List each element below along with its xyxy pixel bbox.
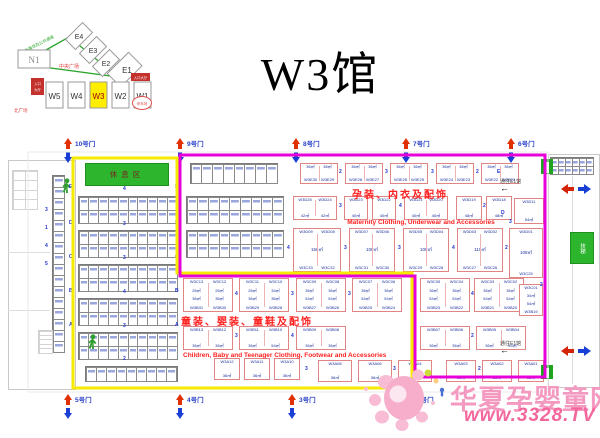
booth-number: W3B22 (445, 306, 468, 310)
booth-number: W3C05 (422, 280, 445, 284)
aisle-label: 3 (123, 324, 126, 329)
gate-label: 9号门 (187, 138, 204, 148)
minimap-hall-e1-label: E1 (122, 66, 132, 75)
booth-block: 36㎡36㎡W3E28W3E27 (345, 163, 383, 184)
booth-area: 36㎡ (347, 165, 364, 169)
booth-number: W3B10 (264, 328, 287, 332)
booth-divider (499, 283, 500, 307)
aisle-label: 3 (123, 222, 126, 227)
booth-number: W3E22 (483, 178, 500, 182)
booth-area: 26㎡ (241, 289, 264, 293)
booth-block: W3A1236㎡ (214, 358, 240, 380)
booth-area: 40㎡ (406, 214, 426, 218)
gate-arrow-up-icon (66, 400, 70, 405)
aisle-label: 2 (471, 334, 474, 339)
booth-block: W3D09W3D08156㎡W3C33W3C32 (293, 228, 341, 272)
booth-divider (264, 283, 265, 307)
booth-number: W3C01 (521, 286, 541, 290)
booth-area: 36㎡ (208, 297, 231, 301)
blue-right-arrow-icon (578, 346, 596, 356)
aisle-label: E (69, 185, 72, 190)
minimap-plaza-label: 中央广场 (59, 63, 79, 70)
booth-block: W3C11W3C1026㎡34㎡36㎡36㎡W3B29W3B28 (239, 278, 289, 312)
gate-label: 7号门 (413, 138, 430, 148)
aisle-label: B (69, 289, 73, 294)
booth-area: 48㎡ (458, 214, 480, 218)
red-left-arrow-icon (556, 184, 574, 194)
booth-block: W3D07W3D06108㎡W3C31W3C30 (349, 228, 395, 272)
category-children-en: Children, Baby and Teenager Clothing, Fo… (183, 352, 386, 359)
minimap-hall-n1-label: N1 (29, 55, 40, 65)
aisle-label: 3 (305, 367, 308, 372)
booth-area: 36㎡ (478, 344, 501, 348)
aisle-label: 2 (476, 170, 479, 175)
gate-label: 6号门 (518, 138, 535, 148)
gate-3号门: 3号门 (286, 390, 298, 423)
booth-block: W3C09W3C0836㎡36㎡54㎡54㎡W3B27W3B26 (296, 278, 346, 312)
aisle-label: 3 (123, 256, 126, 261)
booth-area: 108㎡ (511, 234, 541, 271)
booth-area: 36㎡ (276, 374, 298, 378)
booth-divider (445, 283, 446, 307)
gate-10号门: 10号门 (62, 134, 74, 167)
booth-divider (426, 234, 427, 266)
booth-area: 34㎡ (521, 294, 541, 298)
rest-area: 休息区 (85, 163, 169, 186)
booth-number: W3B19 (521, 310, 541, 314)
corridor-label-bottom: 通往E1馆 ← (500, 340, 521, 353)
booth-area: 36㎡ (208, 344, 231, 348)
booth-number: W3B25 (354, 306, 377, 310)
booth-number: W3B08 (321, 328, 344, 332)
aisle-label: 2 (505, 246, 508, 251)
booth-number: W3C26 (480, 266, 501, 270)
booth-divider (321, 283, 322, 307)
booth-number: W3C27 (459, 266, 480, 270)
minimap-hall-w3-label: W3 (93, 92, 106, 101)
booth-block: W3C13W3C1226㎡26㎡36㎡36㎡W3B31W3B30 (183, 278, 233, 312)
gate-arrow-up-icon (288, 390, 296, 400)
aisle-label: 5 (45, 262, 48, 267)
booth-number: W3E26 (392, 178, 409, 182)
aisle-label: 4 (123, 290, 126, 295)
booth-number: W3B24 (377, 306, 400, 310)
aisle-label: 3 (45, 208, 48, 213)
booth-area: 36㎡ (455, 165, 472, 169)
booth-area: 36㎡ (422, 344, 445, 348)
gate-arrow-down-icon (176, 157, 184, 167)
booth-number: W3C32 (317, 266, 339, 270)
aisle-label: D (175, 221, 179, 226)
gate-arrow-up-icon (64, 390, 72, 400)
aisle-label: 4 (235, 292, 238, 297)
booth-number: W3C11 (241, 280, 264, 284)
aisle-label: 3 (235, 334, 238, 339)
aisle-label: 2 (123, 357, 126, 362)
minimap-hall-e2-label: E2 (102, 61, 111, 68)
category-children-zh: 童装、婴装、童鞋及配饰 (181, 313, 313, 328)
grid-cell (166, 367, 177, 382)
booth-grid (78, 298, 178, 326)
booth-area: 26㎡ (185, 289, 208, 293)
gate-arrow-up-icon (64, 134, 72, 144)
booth-number: W3C30 (372, 266, 393, 270)
booth-block: W3A1136㎡ (244, 358, 270, 380)
gate-arrow-down-icon (176, 413, 184, 423)
booth-area: 36㎡ (241, 344, 264, 348)
aisle-label: 4 (471, 292, 474, 297)
booth-number: W3B27 (298, 306, 321, 310)
booth-number: W3A11 (246, 360, 268, 364)
aisle-label: 3 (398, 246, 401, 251)
booth-area: 26㎡ (208, 289, 231, 293)
gate-arrow-up-icon (66, 144, 70, 149)
booth-area: 54㎡ (264, 344, 287, 348)
booth-block: W3B07W3B0636㎡36㎡ (420, 326, 470, 350)
gate-arrow-up-icon (176, 390, 184, 400)
booth-block: W3B11W3B1036㎡54㎡ (239, 326, 289, 350)
gate-arrow-up-icon (294, 144, 298, 149)
booth-number: W3B29 (241, 306, 264, 310)
booth-number: W3C28 (426, 266, 447, 270)
minimap-corner-label: 北广场 (14, 107, 28, 114)
booth-area: 36㎡ (246, 374, 268, 378)
grid-cell (586, 166, 594, 175)
gate-arrow-down-icon (288, 413, 296, 423)
gate-arrow-down-icon (507, 157, 515, 167)
booth-area: 36㎡ (445, 344, 468, 348)
booth-area: 36㎡ (264, 297, 287, 301)
aisle-label: E (175, 185, 178, 190)
aisle-label: 4 (399, 204, 402, 209)
aisle-label: 4 (123, 187, 126, 192)
aisle-label: 4 (291, 334, 294, 339)
booth-number: W3C07 (354, 280, 377, 284)
booth-divider (455, 166, 456, 180)
booth-number: W3C13 (185, 280, 208, 284)
aisle-label: C (69, 255, 73, 260)
grid-cell (167, 231, 178, 245)
booth-divider (377, 283, 378, 307)
booth-number: W3B05 (478, 328, 501, 332)
booth-area: 40㎡ (426, 214, 446, 218)
booth-divider (364, 166, 365, 180)
booth-area: 36㎡ (354, 289, 377, 293)
left-annex-divider-2 (8, 310, 50, 311)
booth-number: W3C06 (377, 280, 400, 284)
corridor-label-top: 通往E1馆 ← (500, 178, 521, 191)
booth-number: W3B04 (501, 328, 524, 332)
aisle-label: D (69, 221, 73, 226)
grid-cell (272, 231, 284, 245)
booth-grid (78, 196, 178, 224)
booth-divider (321, 330, 322, 347)
minimap-entrance-right-label: 入口大厅 (134, 75, 148, 80)
minimap-hall-e4-label: E4 (75, 34, 84, 41)
booth-number: W3C31 (351, 266, 372, 270)
booth-number: W3C09 (298, 280, 321, 284)
minimap-hall-w2-label: W2 (115, 92, 128, 101)
booth-area: 40㎡ (374, 214, 394, 218)
booth-number: W3B23 (422, 306, 445, 310)
booth-area: 36㎡ (364, 165, 381, 169)
booth-number: W3B26 (321, 306, 344, 310)
aisle-label: 4 (452, 246, 455, 251)
booth-area: 42㎡ (295, 214, 315, 218)
booth-block: W3B09W3B0836㎡36㎡ (296, 326, 346, 350)
aisle-label: 3 (291, 292, 294, 297)
minimap-hall-w5-label: W5 (49, 92, 62, 101)
booth-area: 54㎡ (377, 297, 400, 301)
gate-5号门: 5号门 (62, 390, 74, 423)
aisle-label: D (501, 211, 505, 216)
gate-arrow-down-icon (402, 157, 410, 167)
booth-area: 36㎡ (476, 289, 499, 293)
grid-cell (272, 244, 284, 258)
booth-number: W3B21 (476, 306, 499, 310)
gate-7号门: 7号门 (400, 134, 412, 167)
exit-marker-icon-top (541, 159, 553, 174)
booth-number: W3E30 (302, 178, 319, 182)
booth-grid (186, 230, 284, 258)
booth-divider (319, 166, 320, 180)
gate-arrow-up-icon (404, 144, 408, 149)
blue-right-arrow-icon (578, 184, 596, 194)
booth-area: 36㎡ (321, 289, 344, 293)
booth-number: W3C25 (511, 272, 541, 276)
screen: 室外展场及公共通道 中央广场 E4 E3 E2 E1 N1 W5 W4 W3 W… (0, 0, 600, 438)
aisle-label: 1 (45, 226, 48, 231)
left-arrow-icon: ← (500, 347, 521, 353)
booth-number: W3E29 (319, 178, 336, 182)
gate-arrow-up-icon (176, 134, 184, 144)
booth-grid (186, 196, 284, 224)
booth-area: 42㎡ (315, 214, 335, 218)
booth-grid (78, 230, 178, 258)
aisle-label: 2 (540, 283, 543, 288)
grid-cell (167, 346, 178, 360)
booth-number: W3B07 (422, 328, 445, 332)
minimap: 室外展场及公共通道 中央广场 E4 E3 E2 E1 N1 W5 W4 W3 W… (6, 6, 158, 118)
booth-divider (208, 283, 209, 307)
booth-block: W3C05W3C0436㎡36㎡54㎡54㎡W3B23W3B22 (420, 278, 470, 312)
left-annex-divider-1 (8, 252, 50, 253)
booth-area: 36㎡ (241, 297, 264, 301)
booth-area: 48㎡ (488, 214, 510, 218)
category-maternity-zh: 孕装、内衣及配饰 (300, 186, 500, 201)
booth-number: W3C10 (264, 280, 287, 284)
grid-cell (272, 210, 284, 224)
side-gate-arrows-bottom (556, 346, 596, 356)
booth-area: 36㎡ (377, 289, 400, 293)
booth-area: 54㎡ (321, 297, 344, 301)
booth-number: W3B09 (298, 328, 321, 332)
booth-number: W3E24 (438, 178, 455, 182)
booth-number: W3B13 (185, 328, 208, 332)
booth-area: 36㎡ (321, 344, 344, 348)
aisle-label: 2 (483, 204, 486, 209)
gate-label: 3号门 (299, 394, 316, 404)
gate-label: 10号门 (75, 138, 95, 148)
aisle-label: 4 (287, 246, 290, 251)
booth-grid (550, 157, 594, 175)
grid-cell (167, 299, 178, 313)
booth-area: 36㎡ (185, 344, 208, 348)
gate-arrow-up-icon (292, 134, 300, 144)
booth-block: W3C0134㎡54㎡W3B19 (519, 284, 543, 316)
booth-divider (264, 330, 265, 347)
grid-cell (266, 164, 278, 184)
booth-number: W3A12 (216, 360, 238, 364)
booth-block: 36㎡36㎡W3E24W3E23 (436, 163, 474, 184)
booth-area: 34㎡ (264, 289, 287, 293)
aisle-label: 4 (45, 244, 48, 249)
watermark-site-url: www.3328.TV (464, 405, 596, 427)
gate-8号门: 8号门 (290, 134, 302, 167)
booth-number: W3B06 (445, 328, 468, 332)
booth-grid (78, 264, 178, 292)
booth-area: 54㎡ (476, 297, 499, 301)
booth-block: W3A0836㎡ (318, 360, 352, 382)
grid-cell (167, 197, 178, 211)
booth-block: 36㎡36㎡W3E30W3E29 (300, 163, 338, 184)
side-gate-arrows-top (556, 184, 596, 194)
aisle-label: E (497, 170, 500, 175)
grid-cell (167, 265, 178, 279)
red-left-arrow-icon (556, 346, 574, 356)
booth-divider (372, 234, 373, 266)
booth-number: W3A10 (276, 360, 298, 364)
aisle-label: 3 (431, 170, 434, 175)
booth-grid (52, 175, 65, 353)
booth-number: W3C03 (476, 280, 499, 284)
booth-area: 40㎡ (346, 214, 366, 218)
booth-grid (190, 163, 278, 184)
aisle-label: 2 (339, 170, 342, 175)
booth-divider (480, 234, 481, 266)
left-arrow-icon: ← (500, 185, 521, 191)
booth-block: W3D03W3D02110㎡W3C27W3C26 (457, 228, 503, 272)
minimap-hall-w4-label: W4 (71, 92, 84, 101)
booth-number: W3B11 (241, 328, 264, 332)
booth-area: 54㎡ (298, 297, 321, 301)
gate-label: 5号门 (75, 394, 92, 404)
minimap-entrance-left-label1: 入口 (34, 82, 41, 86)
aisle-label: A (175, 323, 179, 328)
booth-grid (85, 366, 178, 382)
watermark: 华夏孕婴童网 www.3328.TV (358, 360, 600, 438)
booth-number: W3E25 (409, 178, 426, 182)
booth-grid (38, 330, 53, 354)
gate-label: 4号门 (187, 394, 204, 404)
booth-area: 54㎡ (521, 302, 541, 306)
minimap-oval-label: 停车场 (137, 101, 148, 106)
aisle-label: 3 (344, 246, 347, 251)
booth-number: W3B12 (208, 328, 231, 332)
booth-area: 36㎡ (320, 376, 350, 380)
booth-divider (426, 200, 427, 217)
aisle-label: 3 (339, 204, 342, 209)
booth-number: W3E28 (347, 178, 364, 182)
booth-area: 36㎡ (445, 289, 468, 293)
booth-area: 36㎡ (422, 289, 445, 293)
booth-area: 54㎡ (445, 297, 468, 301)
booth-area: 54㎡ (354, 297, 377, 301)
gate-arrow-up-icon (178, 400, 182, 405)
aisle-label: B (175, 289, 179, 294)
gate-arrow-down-icon (292, 157, 300, 167)
booth-number: W3B30 (208, 306, 231, 310)
aisle-label: 3 (348, 292, 351, 297)
booth-number: W3C08 (321, 280, 344, 284)
booth-number: W3C12 (208, 280, 231, 284)
gate-6号门: 6号门 (505, 134, 517, 167)
gate-4号门: 4号门 (174, 390, 186, 423)
booth-area: 36㎡ (298, 344, 321, 348)
person-icon (88, 334, 98, 350)
booth-number: W3A08 (320, 362, 350, 366)
booth-grid (12, 170, 38, 210)
booth-number: W3E27 (364, 178, 381, 182)
booth-number: W3D11 (516, 200, 542, 204)
gate-arrow-up-icon (402, 134, 410, 144)
grid-cell (39, 348, 53, 353)
grid-cell (53, 341, 65, 353)
booth-divider (315, 200, 316, 217)
gate-arrow-up-icon (509, 144, 513, 149)
booth-divider (409, 166, 410, 180)
aisle-label: A (69, 323, 73, 328)
booth-divider (445, 330, 446, 347)
aisle-label: 3 (509, 220, 512, 225)
booth-divider (208, 330, 209, 347)
booth-area: 36㎡ (438, 165, 455, 169)
booth-block: W3D05W3D04108㎡W3C29W3C28 (403, 228, 449, 272)
booth-divider (317, 234, 318, 266)
grid-cell (272, 197, 284, 211)
minimap-hall-e3-label: E3 (89, 48, 98, 55)
booth-block: W3C03W3C0236㎡36㎡54㎡54㎡W3B21W3B20 (474, 278, 524, 312)
minimap-entrance-left (31, 78, 44, 95)
grid-cell (167, 333, 178, 347)
booth-number: W3B28 (264, 306, 287, 310)
gate-label: 8号门 (303, 138, 320, 148)
booth-area: 36㎡ (302, 165, 319, 169)
booth-block: W3A1036㎡ (274, 358, 300, 380)
booth-area: 36㎡ (185, 297, 208, 301)
minimap-entrance-left-label2: 大厅 (34, 87, 41, 92)
booth-number: W3B31 (185, 306, 208, 310)
grid-cell (25, 199, 38, 210)
booth-area: 54㎡ (422, 297, 445, 301)
booth-block: W3C07W3C0636㎡36㎡54㎡54㎡W3B25W3B24 (352, 278, 402, 312)
booth-block: W3D01108㎡W3C25 (509, 228, 543, 278)
watermark-logo-icon (358, 360, 450, 436)
aisle-label: C (175, 255, 179, 260)
booth-number: W3E23 (455, 178, 472, 182)
gate-arrow-up-icon (290, 400, 294, 405)
gate-arrow-up-icon (507, 134, 515, 144)
booth-block: W3B13W3B1236㎡36㎡ (183, 326, 233, 350)
booth-number: W3C04 (445, 280, 468, 284)
aisle-label: 3 (385, 170, 388, 175)
gate-9号门: 9号门 (174, 134, 186, 167)
gate-arrow-down-icon (64, 413, 72, 423)
gate-arrow-up-icon (178, 144, 182, 149)
booth-area: 36㎡ (298, 289, 321, 293)
booth-number: W3C33 (295, 266, 317, 270)
booth-area: 36㎡ (216, 374, 238, 378)
